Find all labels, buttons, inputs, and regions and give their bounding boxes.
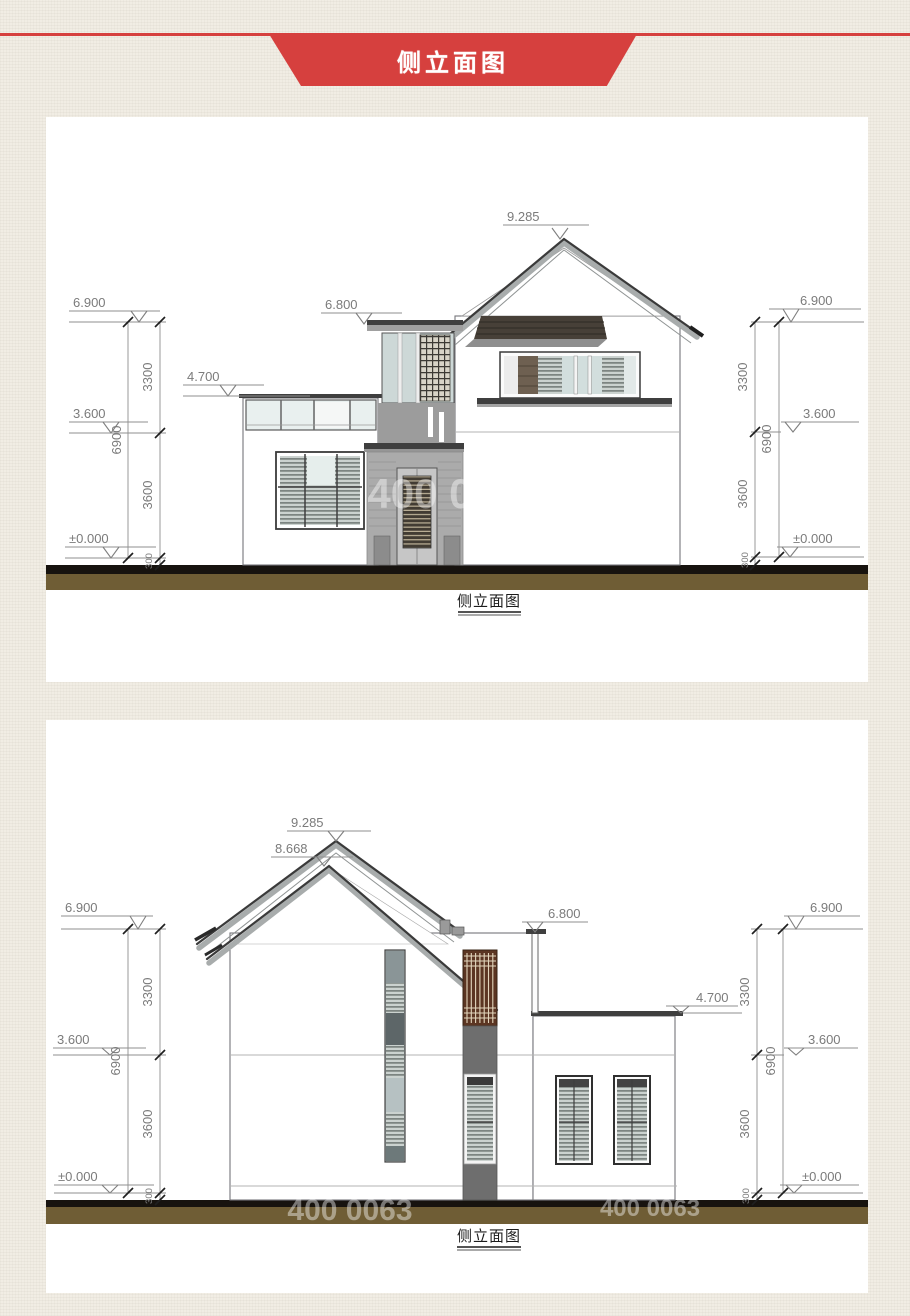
plinth-block — [444, 536, 460, 565]
roof-parapet-step — [452, 927, 464, 935]
plinth-block — [374, 536, 390, 565]
wing-window-1 — [556, 1076, 592, 1164]
level-ground-left: ±0.000 — [69, 531, 109, 546]
level-ground-left: ±0.000 — [58, 1169, 98, 1184]
banner-ribbon: 侧立面图 — [269, 34, 637, 86]
watermark: 400 0063 — [367, 470, 542, 517]
slot-window — [428, 407, 433, 437]
ground-soil — [46, 574, 868, 590]
shingle-awning — [465, 316, 607, 347]
level-floor2-right: 3.600 — [803, 406, 836, 421]
clerestory-window-band — [246, 400, 376, 430]
dim-lower-left: 3600 — [140, 1110, 155, 1139]
level-porch: 4.700 — [187, 369, 220, 384]
elevation-panel-2: 9.285 8.668 6.900 3.600 ±0.000 6.800 4.7… — [46, 720, 868, 1293]
level-ground-right: ±0.000 — [802, 1169, 842, 1184]
dim-chain-left: 6900 3300 3600 300 — [109, 317, 165, 570]
level-eave-left: 6.900 — [73, 295, 106, 310]
watermark: 400 0063 — [600, 1195, 700, 1222]
wing-window-2 — [614, 1076, 650, 1164]
entry-tower — [364, 320, 464, 565]
dim-upper-left: 3300 — [140, 978, 155, 1007]
level-ground-right: ±0.000 — [793, 531, 833, 546]
dim-upper-right: 3300 — [735, 363, 750, 392]
level-ridge: 9.285 — [507, 209, 540, 224]
stair-strip-window — [385, 950, 405, 1162]
dim-total-right: 6900 — [759, 425, 774, 454]
level-floor2-right: 3.600 — [808, 1032, 841, 1047]
balcony-parapet-slab — [477, 398, 672, 404]
drawing-caption: 侧立面图 — [457, 593, 521, 610]
entry-canopy — [364, 443, 464, 449]
dim-plinth-right: 300 — [741, 1188, 752, 1204]
drawing-caption: 侧立面图 — [457, 1228, 521, 1245]
dim-lower-right: 3600 — [737, 1110, 752, 1139]
elevation-panel-1: 9.285 6.900 3.600 ±0.000 4.700 6.800 6.9… — [46, 117, 868, 682]
level-floor2-left: 3.600 — [57, 1032, 90, 1047]
house-side-elevation-2 — [195, 841, 683, 1200]
level-ridge-2: 8.668 — [275, 841, 308, 856]
level-wing-roof: 4.700 — [696, 990, 729, 1005]
lattice-window-column — [463, 950, 497, 1200]
level-eave-right: 6.900 — [800, 293, 833, 308]
tower-roof-slab — [367, 320, 463, 325]
dim-lower-left: 3600 — [140, 481, 155, 510]
dim-upper-left: 3300 — [140, 363, 155, 392]
watermark: 400 0063 — [287, 1194, 412, 1227]
level-eave-left: 6.900 — [65, 900, 98, 915]
dim-lower-right: 3600 — [735, 480, 750, 509]
wing-wall — [533, 1016, 675, 1200]
elevation-drawing-2: 9.285 8.668 6.900 3.600 ±0.000 6.800 4.7… — [46, 720, 868, 1293]
ground-soil — [46, 1207, 868, 1224]
level-parapet: 6.800 — [548, 906, 581, 921]
dim-plinth-right: 300 — [740, 552, 751, 568]
second-floor-window-band — [500, 352, 640, 398]
dim-total-left: 6900 — [109, 426, 124, 455]
dim-plinth-left: 300 — [144, 553, 155, 569]
wing-roof-slab — [531, 1011, 683, 1016]
tower-fascia — [367, 325, 463, 331]
dim-upper-right: 3300 — [737, 978, 752, 1007]
parapet-wall — [532, 933, 538, 1013]
level-tower: 6.800 — [325, 297, 358, 312]
dim-chain-right: 6900 3300 3600 300 — [737, 924, 788, 1205]
dim-total-left: 6900 — [108, 1047, 123, 1076]
dim-total-right: 6900 — [763, 1047, 778, 1076]
level-ridge: 9.285 — [291, 815, 324, 830]
dim-chain-left: 6900 3300 3600 300 — [108, 924, 165, 1205]
level-eave-right: 6.900 — [810, 900, 843, 915]
balcony-parapet-under — [477, 404, 672, 407]
dim-plinth-left: 300 — [144, 1188, 155, 1204]
caption-1: 侧立面图 — [457, 593, 521, 615]
banner-title: 侧立面图 — [397, 43, 509, 78]
level-floor2-left: 3.600 — [73, 406, 106, 421]
elevation-drawing-1: 9.285 6.900 3.600 ±0.000 4.700 6.800 6.9… — [46, 117, 868, 682]
first-floor-window — [276, 452, 364, 529]
dim-chain-right: 6900 3300 3600 300 — [735, 317, 784, 570]
roof-parapet-step — [440, 920, 450, 934]
caption-2: 侧立面图 — [457, 1228, 521, 1250]
slot-window — [439, 412, 444, 442]
tower-lattice-screen — [420, 335, 450, 401]
